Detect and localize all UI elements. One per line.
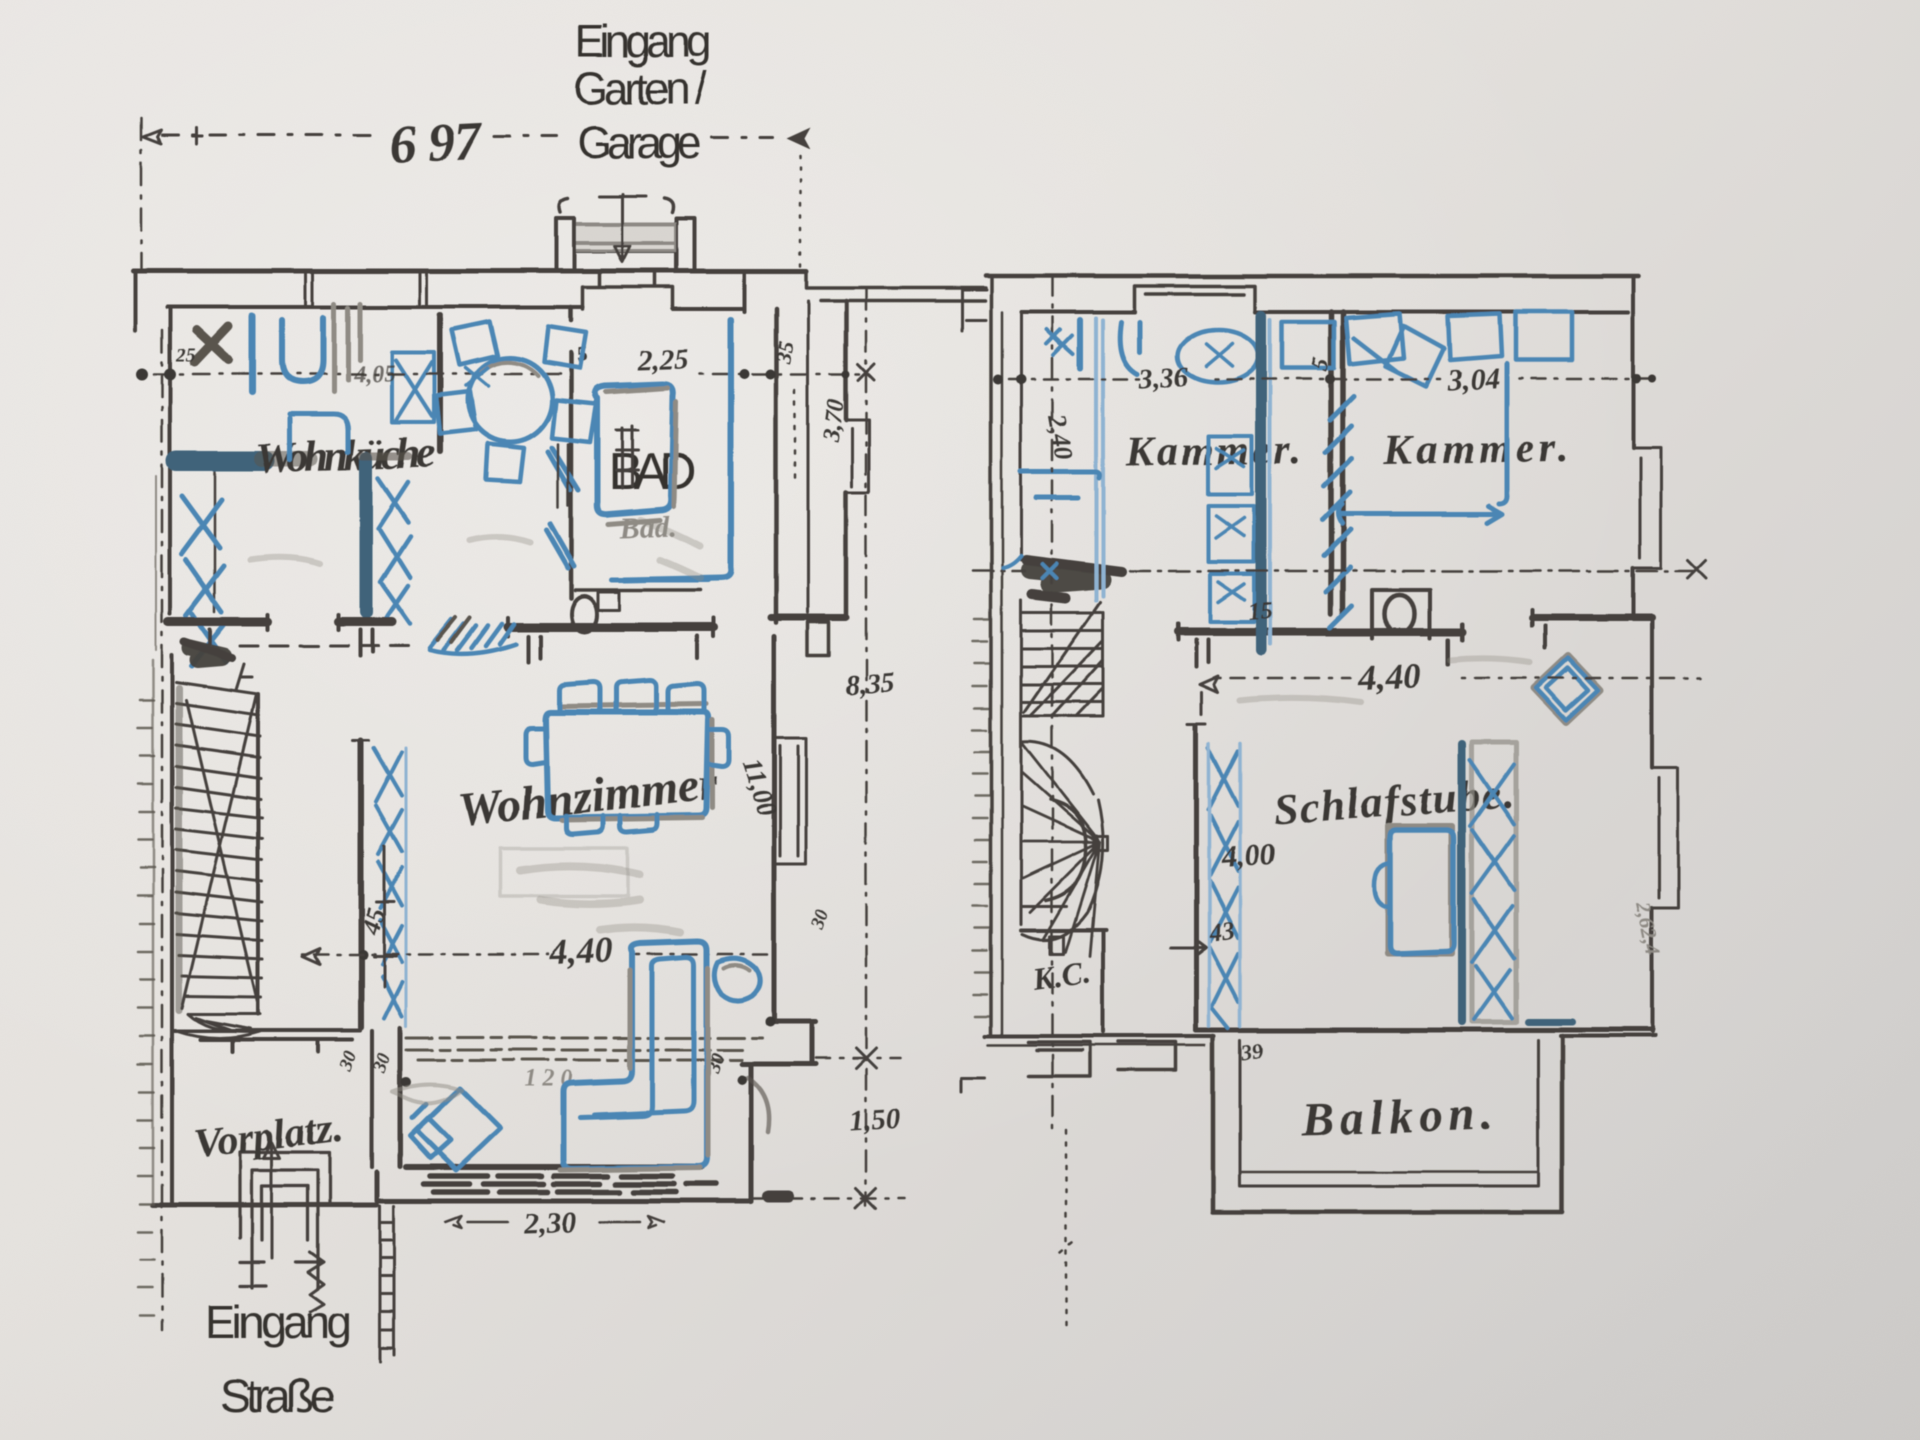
svg-text:2,25: 2,25 <box>636 343 689 377</box>
svg-text:4,00: 4,00 <box>1219 836 1277 875</box>
svg-text:25: 25 <box>175 345 196 366</box>
svg-text:4,40: 4,40 <box>548 930 613 972</box>
svg-text:8,35: 8,35 <box>844 667 895 701</box>
svg-text:Eingang: Eingang <box>205 1296 352 1348</box>
svg-text:Garage: Garage <box>577 117 702 168</box>
svg-text:3,04: 3,04 <box>1446 362 1501 397</box>
svg-text:1,50: 1,50 <box>849 1103 901 1138</box>
svg-text:2,30: 2,30 <box>522 1206 577 1241</box>
svg-text:15: 15 <box>1247 597 1274 626</box>
svg-text:6 97: 6 97 <box>387 110 484 175</box>
svg-text:43: 43 <box>1206 916 1237 948</box>
svg-text:Balkon.: Balkon. <box>1300 1087 1495 1147</box>
svg-text:4,05: 4,05 <box>352 361 396 388</box>
svg-text:4,40: 4,40 <box>1356 656 1421 698</box>
svg-text:Garten /: Garten / <box>573 63 707 114</box>
svg-text:Straße: Straße <box>220 1370 335 1422</box>
svg-text:Eingang: Eingang <box>575 16 712 67</box>
svg-text:3,36: 3,36 <box>1138 361 1190 395</box>
svg-text:39: 39 <box>1238 1037 1264 1065</box>
svg-text:35: 35 <box>770 339 799 366</box>
